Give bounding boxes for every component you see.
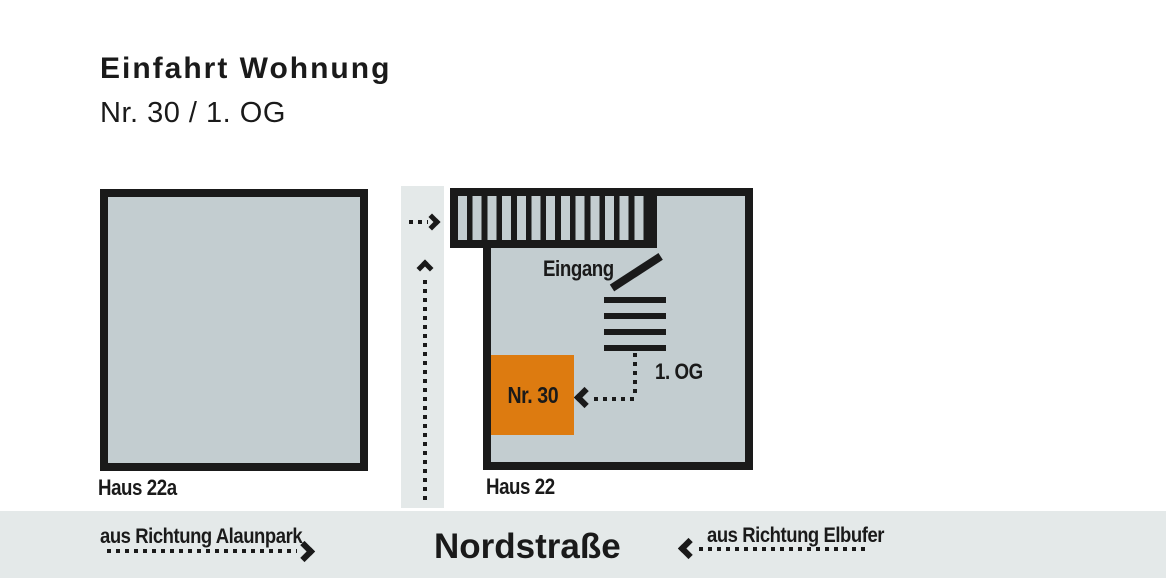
stairs-route-dotted-line [633,353,637,397]
stair-step [604,329,666,335]
building-haus-22a [100,189,368,471]
stair-step [604,297,666,303]
street-name: Nordstraße [434,527,621,567]
direction-label-alaunpark: aus Richtung Alaunpark [100,525,302,549]
page-subtitle: Nr. 30 / 1. OG [100,97,286,130]
building-label-haus-22a: Haus 22a [98,475,177,501]
building-label-haus-22: Haus 22 [486,474,555,500]
wayfinding-map-page: Einfahrt Wohnung Nr. 30 / 1. OG Haus 22a… [0,0,1166,578]
apartment-route-dotted-line [594,397,636,401]
direction-alaunpark-dotted-line [107,549,297,553]
stair-step [604,345,666,351]
stair-step [604,313,666,319]
direction-label-elbufer: aus Richtung Elbufer [707,524,884,548]
carport-hatched-strip [450,188,657,248]
floor-label: 1. OG [655,359,703,385]
apartment-nr30-marker: Nr. 30 [491,355,574,435]
stairs-icon [604,297,666,351]
apartment-nr30-label: Nr. 30 [507,382,558,409]
page-title: Einfahrt Wohnung [100,52,391,86]
alley-route-dotted-line [423,280,427,503]
entrance-label: Eingang [543,256,614,282]
